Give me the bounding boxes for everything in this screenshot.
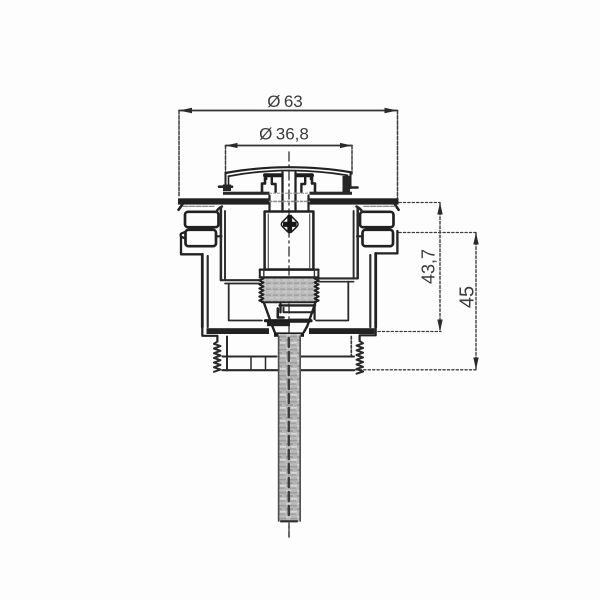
svg-text:43,7: 43,7 — [419, 249, 439, 284]
svg-text:Ø 63: Ø 63 — [267, 92, 303, 111]
svg-text:45: 45 — [457, 286, 479, 308]
svg-text:Ø 36,8: Ø 36,8 — [259, 124, 309, 143]
